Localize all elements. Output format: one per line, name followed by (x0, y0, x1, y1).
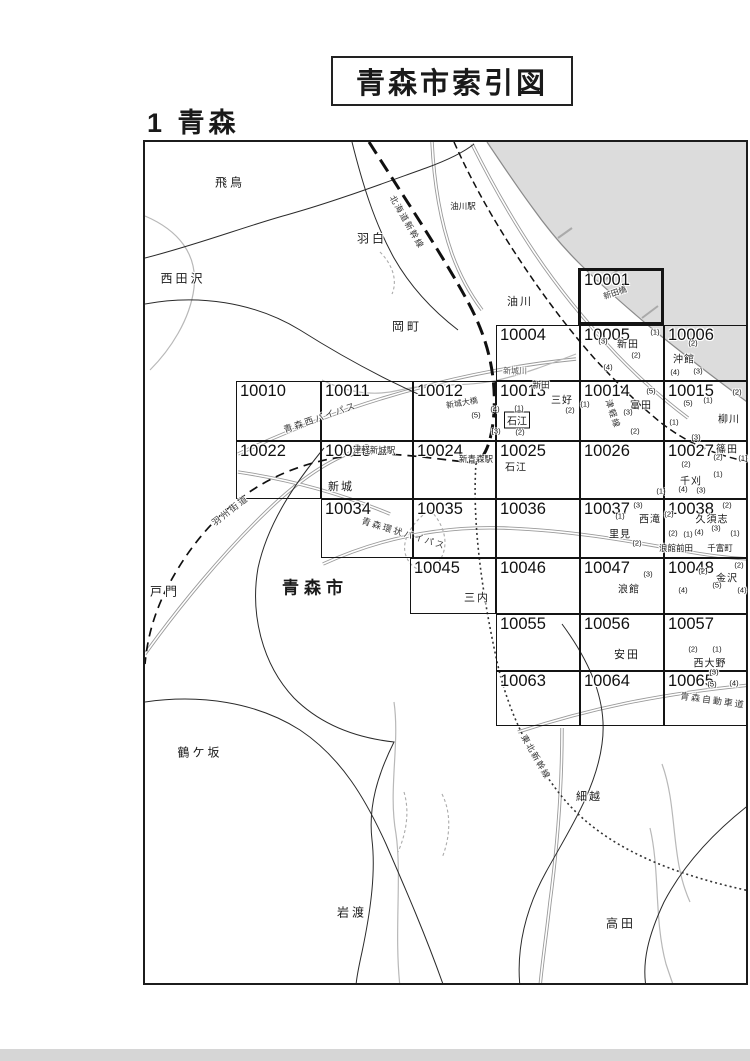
area-number-label: (4) (737, 586, 746, 595)
index-cell-10064[interactable]: 10064 (580, 671, 664, 726)
area-number-label: (2) (681, 460, 690, 469)
place-label: 新城 (328, 478, 354, 494)
index-cell-10055[interactable]: 10055 (496, 614, 580, 671)
place-label: 鶴ケ坂 (177, 744, 222, 761)
cell-number: 10036 (500, 500, 546, 519)
place-label: 青森市 (282, 574, 348, 599)
index-cell-10063[interactable]: 10063 (496, 671, 580, 726)
page: 青森市索引図 1 青森 (0, 0, 750, 1061)
area-number-label: (2) (630, 427, 639, 436)
area-number-label: (1) (683, 530, 692, 539)
place-label: 高田 (606, 915, 636, 932)
area-number-label: (3) (709, 668, 718, 677)
area-number-label: (4) (678, 586, 687, 595)
area-number-label: (1) (514, 404, 523, 413)
index-cell-10035[interactable]: 10035 (413, 499, 496, 558)
district-label: 柳川 (718, 411, 740, 426)
place-label: 油川 (507, 293, 533, 309)
place-label: 羽白 (357, 230, 387, 247)
index-cell-10045[interactable]: 10045 (410, 558, 496, 614)
area-number-label: (3) (623, 408, 632, 417)
cell-number: 10026 (584, 442, 630, 461)
cell-number: 10010 (240, 382, 286, 401)
area-number-label: (1) (580, 400, 589, 409)
district-label: 三好 (551, 392, 573, 407)
area-number-label: (3) (633, 501, 642, 510)
area-number-label: (2) (688, 339, 697, 348)
area-number-label: (3) (491, 427, 500, 436)
cell-number: 10057 (668, 615, 714, 634)
area-number-label: (2) (515, 428, 524, 437)
district-label: 里見 (609, 526, 631, 541)
area-number-label: (4) (603, 363, 612, 372)
station-label: 津軽新城駅 (353, 444, 396, 456)
cell-number: 10022 (240, 442, 286, 461)
district-label: 沖館 (673, 351, 695, 366)
area-number-label: (2) (565, 406, 574, 415)
area-number-label: (1) (730, 529, 739, 538)
index-cell-10012[interactable]: 10012 (413, 381, 496, 441)
area-number-label: (4) (490, 405, 499, 414)
area-number-label: (1) (650, 328, 659, 337)
area-number-label: (1) (615, 512, 624, 521)
district-label: 浪館 (618, 581, 640, 596)
area-number-label: (2) (698, 567, 707, 576)
index-cell-10010[interactable]: 10010 (236, 381, 321, 441)
area-number-label: (5) (683, 399, 692, 408)
index-cell-10056[interactable]: 10056 (580, 614, 664, 671)
cell-number: 10014 (584, 382, 630, 401)
area-number-label: (4) (729, 679, 738, 688)
area-number-label: (3) (696, 486, 705, 495)
index-cell-10046[interactable]: 10046 (496, 558, 580, 614)
area-number-label: (1) (713, 470, 722, 479)
index-cell-10022[interactable]: 10022 (236, 441, 321, 499)
place-label: 戸門 (150, 583, 180, 600)
cell-number: 10004 (500, 326, 546, 345)
area-number-label: (2) (632, 539, 641, 548)
area-number-label: (3) (598, 337, 607, 346)
cell-number: 10063 (500, 672, 546, 691)
cell-number: 10024 (417, 442, 463, 461)
place-label: 飛鳥 (215, 174, 245, 191)
district-label: 千富町 (707, 542, 733, 554)
cell-number: 10035 (417, 500, 463, 519)
area-number-label: (2) (631, 351, 640, 360)
area-number-label: (4) (694, 528, 703, 537)
place-label: 西田沢 (160, 270, 205, 287)
page-title: 青森市索引図 (356, 60, 548, 102)
district-label: 西滝 (639, 511, 661, 526)
map-overlay: 1000110004100051000610010100111001210013… (143, 140, 748, 985)
area-number-label: (4) (670, 368, 679, 377)
area-number-label: (5) (471, 411, 480, 420)
area-number-label: (2) (688, 645, 697, 654)
place-label: 三内 (464, 589, 490, 605)
area-number-label: (5) (712, 581, 721, 590)
area-number-label: (3) (643, 570, 652, 579)
page-title-box: 青森市索引図 (331, 56, 573, 106)
district-label: 新田 (532, 379, 549, 391)
area-number-label: (5) (707, 680, 716, 689)
road-label: 羽州街道 (209, 491, 252, 528)
place-label: 細越 (576, 788, 602, 804)
district-label: 浪館前田 (659, 542, 693, 554)
index-cell-10026[interactable]: 10026 (580, 441, 664, 499)
area-number-label: (3) (691, 433, 700, 442)
area-number-label: (1) (656, 487, 665, 496)
section-heading: 1 青森 (147, 101, 240, 140)
cell-number: 10047 (584, 559, 630, 578)
cell-number: 10056 (584, 615, 630, 634)
area-number-label: (3) (711, 524, 720, 533)
place-label: 安田 (614, 646, 640, 662)
area-number-label: (1) (712, 645, 721, 654)
index-cell-10036[interactable]: 10036 (496, 499, 580, 558)
river-label: 新城川 (503, 366, 527, 377)
station-label: 新青森駅 (459, 453, 493, 465)
area-number-label: (1) (669, 418, 678, 427)
area-number-label: (5) (646, 387, 655, 396)
cell-number: 10011 (325, 382, 370, 401)
area-number-label: (2) (734, 561, 743, 570)
area-number-label: (2) (722, 501, 731, 510)
cell-number: 10027 (668, 442, 714, 461)
area-number-label: (3) (693, 367, 702, 376)
area-number-label: (4) (678, 485, 687, 494)
cell-number: 10055 (500, 615, 546, 634)
area-number-label: (1) (703, 396, 712, 405)
district-label-boxed: 石江 (504, 412, 530, 429)
cell-number: 10045 (414, 559, 460, 578)
area-number-label: (2) (713, 453, 722, 462)
page-edge-shadow (0, 1049, 750, 1061)
area-number-label: (2) (664, 510, 673, 519)
index-cell-10024[interactable]: 10024 (413, 441, 496, 499)
cell-number: 10064 (584, 672, 630, 691)
area-number-label: (2) (732, 388, 741, 397)
district-label: 富田 (630, 397, 652, 412)
area-number-label: (2) (668, 529, 677, 538)
cell-number: 10046 (500, 559, 546, 578)
district-label: 石江 (505, 459, 527, 474)
place-label: 岩渡 (337, 904, 367, 921)
station-label: 油川駅 (450, 200, 476, 212)
rail-label: 北海道新幹線 (387, 193, 427, 251)
district-label: 新田 (617, 336, 639, 351)
rail-label: 東北新幹線 (518, 732, 553, 781)
area-number-label: (1) (738, 454, 747, 463)
place-label: 岡町 (392, 318, 422, 335)
